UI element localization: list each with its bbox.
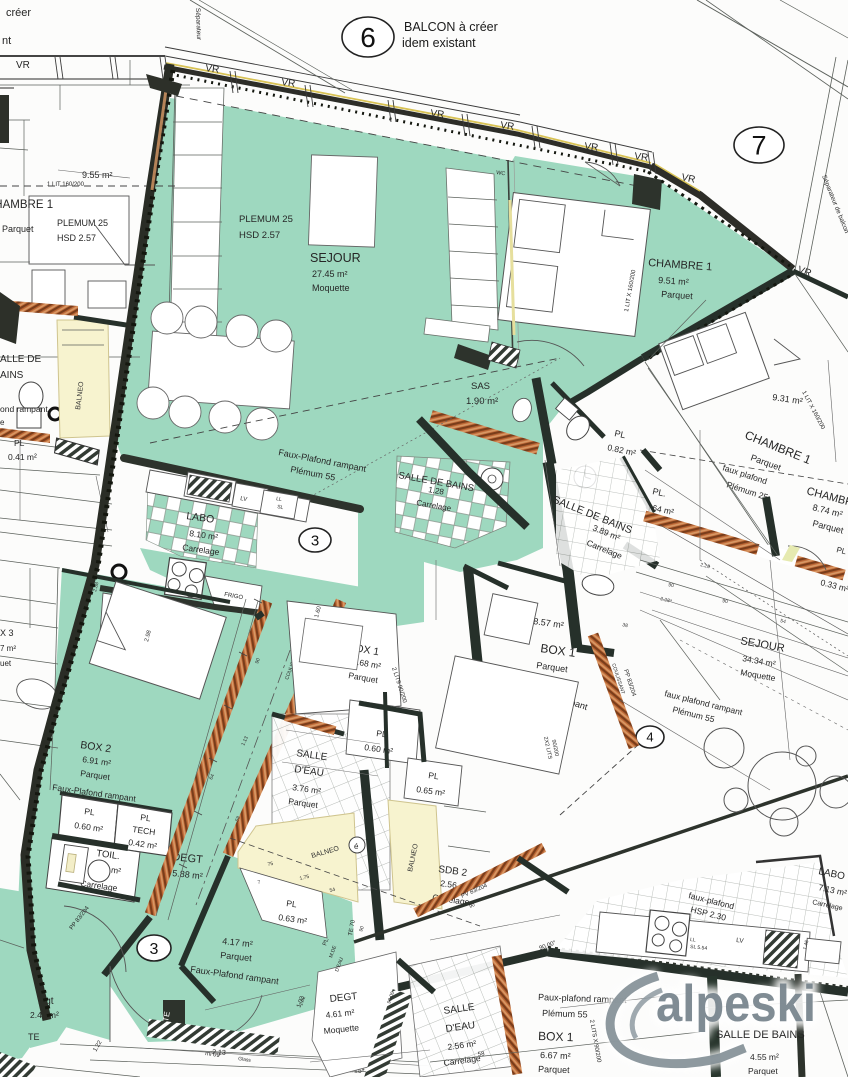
svg-text:PLEMUM 25: PLEMUM 25 [239, 214, 293, 225]
svg-text:3: 3 [150, 941, 159, 958]
svg-text:PL: PL [140, 812, 152, 823]
svg-text:CHAMBRE 1: CHAMBRE 1 [0, 199, 53, 211]
svg-text:WC: WC [496, 170, 506, 177]
svg-text:4: 4 [646, 730, 653, 745]
svg-text:Plémum 55: Plémum 55 [542, 1008, 588, 1020]
svg-text:7 m²: 7 m² [0, 644, 16, 653]
svg-text:27.45 m²: 27.45 m² [312, 269, 348, 279]
svg-text:HSD 2.57: HSD 2.57 [239, 230, 280, 241]
svg-text:SALLE DE BAINS: SALLE DE BAINS [716, 1029, 805, 1041]
svg-text:HSD 2.57: HSD 2.57 [57, 233, 96, 243]
svg-text:TE: TE [28, 1032, 40, 1042]
svg-text:é: é [354, 842, 359, 851]
svg-text:VR: VR [281, 77, 296, 90]
svg-text:PL: PL [428, 770, 440, 781]
svg-text:X 3: X 3 [0, 628, 14, 638]
svg-text:LV: LV [736, 937, 745, 945]
svg-text:LV: LV [240, 496, 248, 503]
svg-text:1 LIT 160/200: 1 LIT 160/200 [47, 182, 85, 188]
svg-text:VR: VR [205, 63, 220, 76]
svg-text:TE: TE [161, 1011, 172, 1023]
svg-text:uet: uet [0, 659, 12, 668]
svg-text:idem existant: idem existant [402, 36, 476, 50]
svg-text:SEJOUR: SEJOUR [310, 251, 361, 265]
svg-text:9.51 m²: 9.51 m² [658, 275, 689, 287]
svg-text:Moquette: Moquette [312, 283, 350, 293]
svg-text:PL: PL [286, 898, 298, 909]
svg-text:AINS: AINS [0, 370, 24, 381]
svg-text:VR: VR [16, 60, 30, 71]
svg-text:9.55 m²: 9.55 m² [82, 170, 113, 180]
svg-text:VR: VR [430, 108, 445, 121]
svg-text:Parquet: Parquet [748, 1066, 778, 1076]
svg-text:PL: PL [84, 806, 96, 817]
svg-text:e: e [0, 418, 5, 427]
svg-text:VR: VR [634, 151, 649, 164]
svg-text:6.67 m²: 6.67 m² [540, 1050, 571, 1061]
svg-text:Parquet: Parquet [2, 224, 34, 234]
svg-text:Séparateur: Séparateur [194, 8, 202, 41]
svg-text:SAS: SAS [471, 381, 490, 392]
svg-text:2.13: 2.13 [212, 1049, 226, 1057]
svg-text:6: 6 [360, 22, 376, 53]
svg-text:BOX 1: BOX 1 [538, 1029, 574, 1044]
svg-text:PLEMUM 25: PLEMUM 25 [57, 218, 108, 228]
svg-text:LL: LL [690, 937, 696, 944]
svg-text:4.55 m²: 4.55 m² [750, 1052, 779, 1062]
svg-text:58: 58 [478, 1051, 486, 1058]
svg-text:VR: VR [500, 120, 515, 133]
svg-text:Parquet: Parquet [538, 1064, 570, 1075]
svg-text:créer: créer [6, 7, 31, 19]
svg-text:0.41 m²: 0.41 m² [8, 452, 37, 462]
svg-text:BALCON à créer: BALCON à créer [404, 20, 498, 34]
svg-text:7: 7 [751, 131, 766, 161]
svg-text:ALLE DE: ALLE DE [0, 354, 41, 365]
svg-text:SL: SL [277, 504, 284, 511]
svg-text:3: 3 [311, 532, 319, 549]
svg-text:ond rampant: ond rampant [0, 404, 48, 414]
svg-text:nt: nt [2, 35, 11, 47]
svg-text:VR: VR [584, 141, 599, 154]
